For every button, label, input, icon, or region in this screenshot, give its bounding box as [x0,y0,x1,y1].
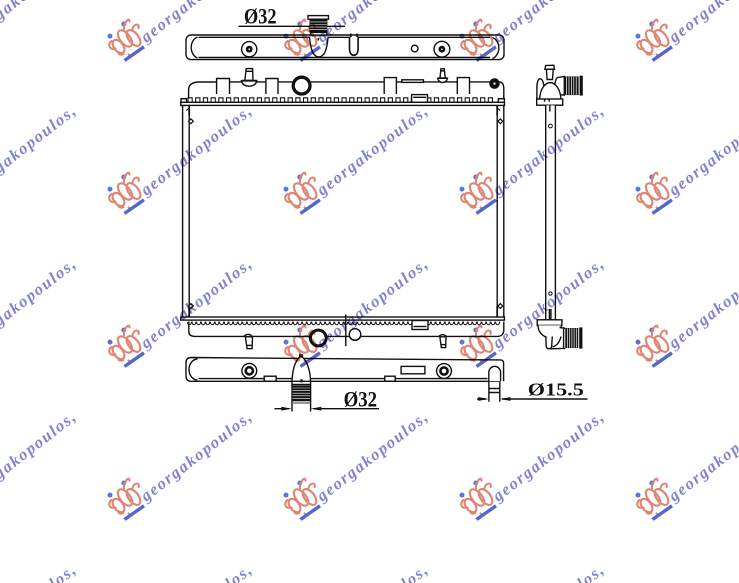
svg-text:Ø15.5: Ø15.5 [528,379,584,399]
svg-text:Ø32: Ø32 [244,3,277,28]
svg-text:Ø32: Ø32 [344,387,378,412]
